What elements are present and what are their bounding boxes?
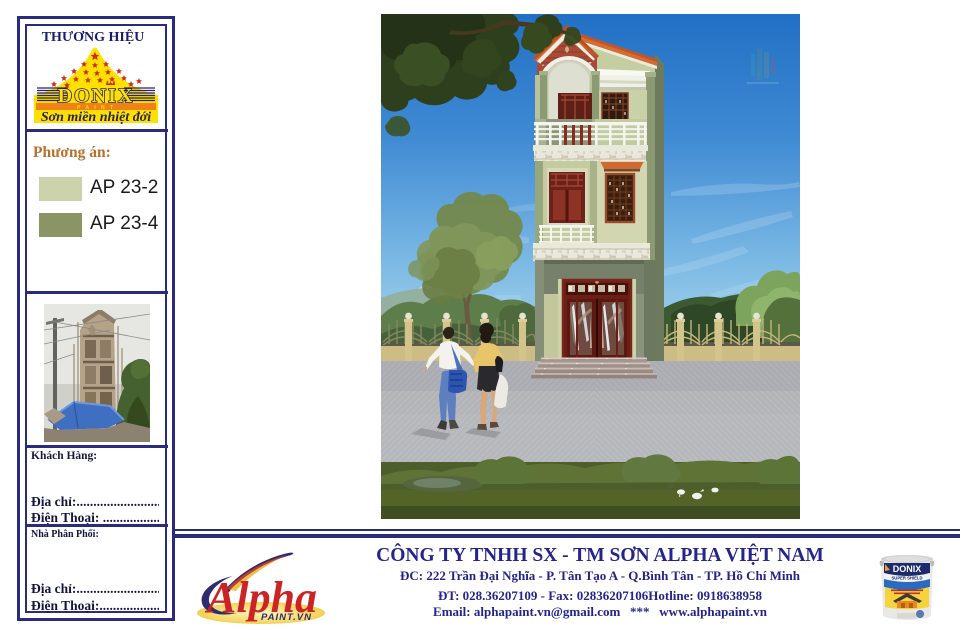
svg-text:SUPER SHIELD: SUPER SHIELD	[892, 576, 923, 581]
svg-text:PAINT.VN: PAINT.VN	[261, 612, 312, 623]
svg-text:Sơn miền nhiệt đới: Sơn miền nhiệt đới	[41, 110, 151, 125]
svg-text:DONIX: DONIX	[893, 564, 922, 574]
